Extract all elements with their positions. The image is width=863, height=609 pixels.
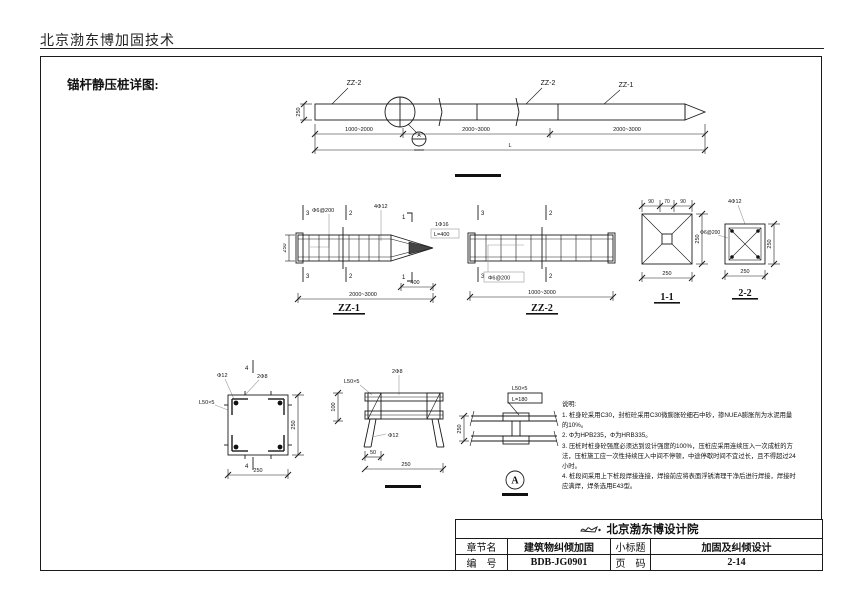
company-header: 北京渤东博加固技术 (40, 30, 175, 50)
chapter-key: 章节名 (456, 539, 508, 555)
dim-right: 250 (767, 239, 773, 248)
segment-label-zz2-left: ZZ-2 (347, 80, 362, 87)
segment-label-zz2-mid: ZZ-2 (541, 80, 556, 87)
pile-height-dim: 250 (296, 107, 302, 116)
subtitle-value: 加固及纠倾设计 (651, 539, 822, 555)
dim-70: 70 (664, 199, 670, 205)
section-title-1-1: 1-1 (660, 292, 673, 303)
dim-seg3: 2000~3000 (613, 127, 641, 133)
anchor-frame-section-drawing: 4 Φ12 2Φ8 L50×5 4 250 250 (195, 355, 330, 490)
dim-bottom: 250 (662, 271, 671, 277)
institute-logo-icon (580, 524, 602, 535)
zz1-detail-drawing: 3 3 2 2 Φ6@200 4Φ12 1 1 1Φ16 (283, 195, 465, 315)
section-mark-1: 1 (402, 215, 406, 221)
pile-elevation-drawing: A ZZ-2 ZZ-2 ZZ-1 250 1000~2000 2000~3000… (288, 72, 723, 167)
stirrup-label: Φ6@200 (700, 230, 720, 236)
section-mark-4: 4 (245, 464, 249, 470)
number-value: BDB-JG0901 (508, 555, 611, 570)
scale-bar (455, 174, 501, 177)
subtitle-key: 小标题 (611, 539, 651, 555)
tip-bar-length: L=400 (434, 232, 449, 238)
angle-steel-label: L50×5 (344, 379, 359, 385)
tip-bar-label: 1Φ16 (435, 222, 449, 228)
section-mark-1: 1 (402, 275, 406, 281)
segment-label-zz1: ZZ-1 (619, 82, 634, 89)
section-mark-4: 4 (245, 366, 249, 372)
number-key: 编 号 (456, 555, 508, 570)
stirrup-label: Φ6@200 (488, 276, 510, 282)
dim-90: 90 (648, 199, 654, 205)
section-2-2-drawing: 4Φ12 Φ6@200 250 250 2-2 (700, 192, 784, 304)
detail-title-zz1: ZZ-1 (338, 303, 360, 314)
detail-a-mark: A (511, 476, 519, 487)
dim-50: 50 (370, 450, 376, 456)
notes-title: 说明: (562, 400, 798, 410)
tie-bar-label: 2Φ8 (392, 369, 403, 375)
angle-length-label: L=180 (512, 397, 527, 403)
note-item: 1. 桩身砼采用C30，封桩砼采用C30微膨胀砼细石中砂，掺NUEA膨胀剂为水泥… (562, 411, 798, 431)
length-dim: 2000~3000 (349, 292, 377, 298)
angle-steel-label: L50×5 (512, 386, 527, 392)
dim-right: 250 (291, 420, 297, 429)
general-notes: 说明: 1. 桩身砼采用C30，封桩砼采用C30微膨胀砼细石中砂，掺NUEA膨胀… (562, 400, 798, 493)
section-mark-2: 2 (349, 274, 353, 280)
dim-left: 100 (331, 402, 337, 411)
stirrup-label: Φ6@200 (312, 208, 334, 214)
height-dim: 250 (283, 243, 288, 252)
institute-name: 北京渤东博设计院 (607, 521, 699, 537)
section-mark-2: 2 (349, 211, 353, 217)
page-value: 2-14 (651, 555, 822, 570)
section-mark-3: 3 (481, 211, 485, 217)
tip-dim: 400 (410, 280, 419, 286)
dim-250: 250 (401, 462, 410, 468)
drawing-title: 锚杆静压桩详图: (67, 74, 159, 93)
dim-bottom: 250 (253, 468, 262, 474)
institute-row: 北京渤东博设计院 (456, 520, 822, 539)
tie-bar-label: 2Φ8 (257, 374, 268, 380)
angle-steel-label: L50×5 (199, 400, 214, 406)
header-rule (40, 48, 824, 49)
section-title-2-2: 2-2 (738, 288, 751, 299)
note-item: 2. Φ为HPB235，Φ为HRB335。 (562, 431, 798, 441)
note-item: 3. 压桩时桩身砼强度必须达到设计强度的100%，压桩应采用连续压入一次成桩的方… (562, 442, 798, 471)
page-key: 页 码 (611, 555, 651, 570)
note-item: 4. 桩段间采用上下桩段焊接连接，焊接前应将表面浮锈清理干净后进行焊接，焊接时应… (562, 472, 798, 492)
leg-bar-label: Φ12 (388, 433, 399, 439)
dim-90: 90 (680, 199, 686, 205)
section-mark-3: 3 (306, 211, 310, 217)
dim-total-length: L (508, 143, 511, 149)
section-mark-3: 3 (306, 274, 310, 280)
length-dim: 1000~3000 (528, 290, 556, 296)
drawing-sheet: 北京渤东博加固技术 锚杆静压桩详图: A ZZ-2 ZZ-2 ZZ-1 250 (0, 0, 863, 609)
section-mark-2: 2 (549, 211, 553, 217)
main-bar-label: 4Φ12 (728, 199, 742, 205)
main-bar-label: 4Φ12 (374, 204, 388, 210)
section-mark-2: 2 (549, 274, 553, 280)
chapter-value: 建筑物纠倾加固 (508, 539, 611, 555)
title-block: 北京渤东博设计院 章节名 建筑物纠倾加固 小标题 加固及纠倾设计 编 号 BDB… (455, 519, 823, 571)
zz2-detail-drawing: 3 3 2 2 Φ6@200 1000~3000 ZZ-2 (458, 195, 630, 315)
dim-seg1: 1000~2000 (345, 127, 373, 133)
section-mark-3: 3 (481, 274, 485, 280)
title-block-grid: 章节名 建筑物纠倾加固 小标题 加固及纠倾设计 编 号 BDB-JG0901 页… (456, 539, 822, 570)
dim-bottom: 250 (740, 269, 749, 275)
dim-seg2: 2000~3000 (462, 127, 490, 133)
corner-bar-label: Φ12 (217, 373, 228, 379)
detail-a-drawing: L50×5 L=180 250 A (455, 365, 570, 505)
dim-left: 250 (457, 424, 463, 433)
detail-title-zz2: ZZ-2 (531, 303, 553, 314)
